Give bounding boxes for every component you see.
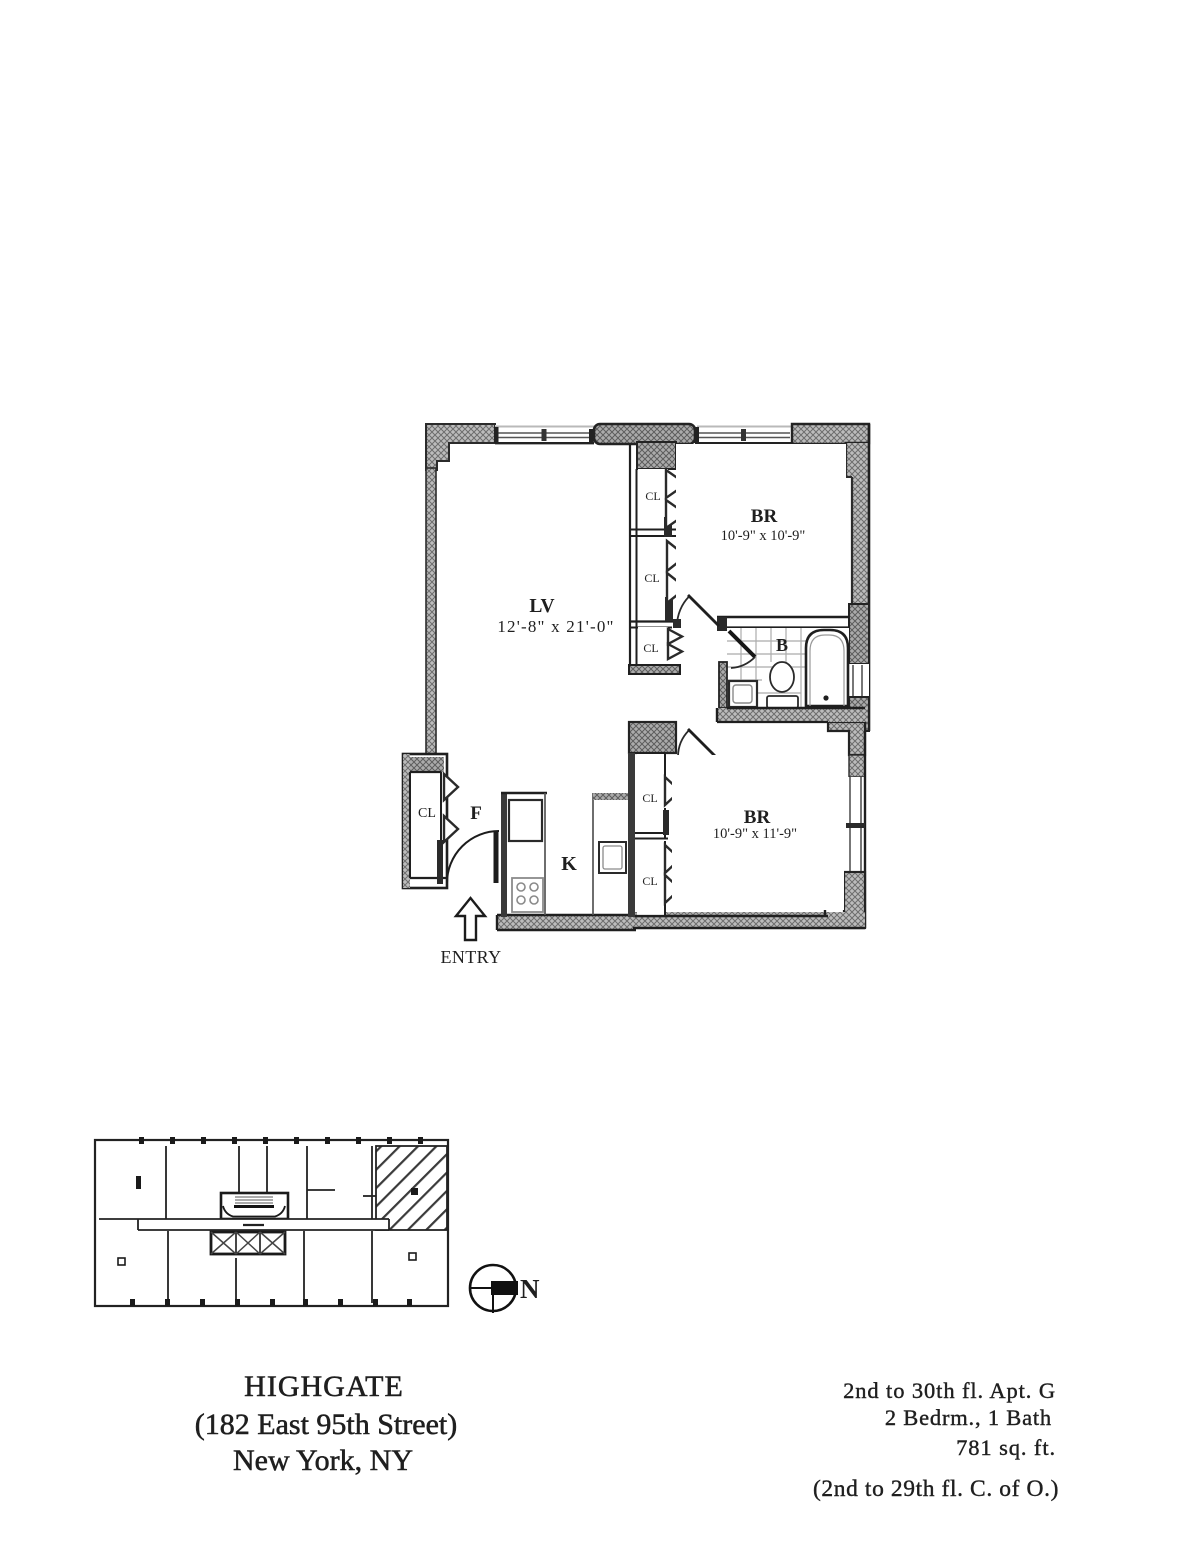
svg-text:2nd to 30th fl. Apt. G: 2nd to 30th fl. Apt. G bbox=[843, 1378, 1056, 1403]
svg-text:CL: CL bbox=[644, 571, 659, 585]
svg-text:CL: CL bbox=[642, 791, 657, 805]
svg-text:(182 East 95th Street): (182 East 95th Street) bbox=[195, 1408, 457, 1441]
svg-text:CL: CL bbox=[642, 874, 657, 888]
svg-text:LV: LV bbox=[529, 596, 554, 617]
svg-text:ENTRY: ENTRY bbox=[440, 947, 501, 967]
svg-text:CL: CL bbox=[645, 489, 660, 503]
svg-text:HIGHGATE: HIGHGATE bbox=[244, 1370, 404, 1403]
svg-text:New York, NY: New York, NY bbox=[233, 1444, 413, 1477]
svg-text:B: B bbox=[776, 635, 788, 655]
svg-text:(2nd to 29th fl. C. of O.): (2nd to 29th fl. C. of O.) bbox=[813, 1476, 1059, 1502]
svg-text:F: F bbox=[470, 803, 482, 824]
svg-text:CL: CL bbox=[418, 806, 436, 821]
svg-text:781 sq. ft.: 781 sq. ft. bbox=[956, 1435, 1056, 1460]
svg-text:BR: BR bbox=[744, 807, 771, 828]
svg-text:2 Bedrm., 1 Bath: 2 Bedrm., 1 Bath bbox=[885, 1405, 1052, 1430]
svg-text:12'-8" x 21'-0": 12'-8" x 21'-0" bbox=[497, 617, 614, 636]
svg-text:K: K bbox=[561, 853, 577, 875]
svg-text:10'-9" x 11'-9": 10'-9" x 11'-9" bbox=[713, 826, 797, 842]
svg-text:10'-9" x 10'-9": 10'-9" x 10'-9" bbox=[721, 528, 806, 544]
svg-text:N: N bbox=[520, 1274, 540, 1304]
svg-text:CL: CL bbox=[643, 641, 658, 655]
svg-text:BR: BR bbox=[751, 506, 778, 527]
